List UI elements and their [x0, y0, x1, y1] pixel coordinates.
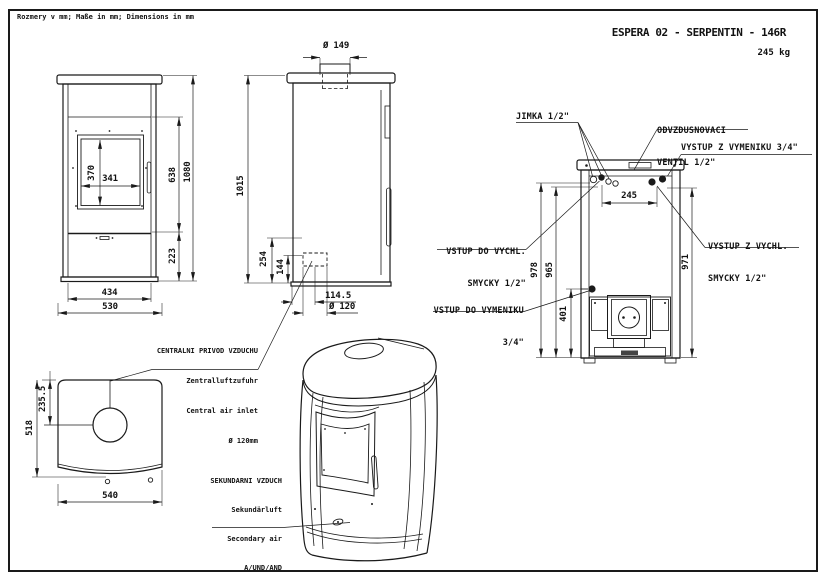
callout-vent-line2: VENTIL 1/2" — [657, 158, 726, 169]
dim-depth-total: 518 — [25, 420, 35, 436]
dim-total-width: 530 — [102, 302, 118, 312]
callout-air: SEKUNDARNI VZDUCH Sekundärluft Secondary… — [192, 458, 282, 583]
dim-inlet-top-height: 254 — [259, 251, 269, 267]
dim-height-outer: 978 — [530, 262, 540, 278]
dim-inlet-height-rear: 401 — [559, 306, 569, 322]
side-view-linework — [287, 64, 395, 286]
callout-central-air-line3: Central air inlet — [140, 406, 258, 416]
drawing-title: ESPERA 02 - SERPENTIN - 146R — [560, 26, 786, 39]
side-view-dimension-lines — [244, 58, 367, 317]
dim-flue-diameter: Ø 149 — [323, 41, 349, 51]
callout-outlet-loop-line1: VYSTUP Z VYCHL. — [708, 242, 788, 253]
drawing-sheet: Rozmery v mm; Maße in mm; Dimensions in … — [0, 0, 828, 583]
callout-outlet-loop-line2: SMYCKY 1/2" — [708, 274, 788, 285]
callout-air-line3: Secondary air — [192, 535, 282, 545]
sheet-border — [9, 10, 817, 571]
callout-air-line2: Sekundärluft — [192, 506, 282, 516]
dim-base-height: 223 — [168, 248, 178, 264]
dim-total-height: 1080 — [183, 162, 193, 183]
drawing-linework — [0, 0, 828, 583]
callout-central-air: CENTRALNI PRIVOD VZDUCHU Zentralluftzufu… — [140, 326, 258, 456]
dim-flue-center-height: 1015 — [236, 176, 246, 197]
weight-value: 245 kg — [660, 48, 790, 58]
callout-inlet-loop-line1: VSTUP DO VYCHL. — [430, 247, 526, 258]
dim-width-total-plan: 540 — [102, 491, 118, 501]
callout-outlet-exchanger: VYSTUP Z VYMENIKU 3/4" — [681, 143, 798, 154]
dim-inlet-diameter: Ø 120 — [329, 302, 355, 312]
dim-height-right: 971 — [681, 254, 691, 270]
callout-inlet-exchanger: VSTUP DO VYMENIKU 3/4" — [428, 285, 524, 359]
dim-height-inner: 965 — [545, 262, 555, 278]
dim-inlet-height: 144 — [276, 259, 286, 275]
callout-central-air-line4: Ø 120mm — [140, 436, 258, 446]
callout-central-air-line1: CENTRALNI PRIVOD VZDUCHU — [140, 346, 258, 356]
callout-outlet-loop: VYSTUP Z VYCHL. SMYCKY 1/2" — [708, 221, 788, 295]
dim-pipe-spacing: 245 — [621, 191, 637, 201]
units-note: Rozmery v mm; Maße in mm; Dimensions in … — [17, 12, 194, 22]
rear-view-dimension-lines — [536, 183, 697, 358]
front-view-dimension-lines — [58, 76, 197, 317]
callout-air-line1: SEKUNDARNI VZDUCH — [192, 477, 282, 487]
dim-mid-height: 638 — [168, 167, 178, 183]
callout-inlet-exchanger-line2: 3/4" — [428, 338, 524, 349]
callout-air-line4: A/UND/AND — [192, 564, 282, 574]
dim-depth-to-center: 235.5 — [38, 386, 48, 412]
perspective-view-linework — [300, 338, 437, 561]
dim-glass-width: 341 — [102, 174, 118, 184]
callout-jimka: JIMKA 1/2" — [516, 112, 569, 123]
dim-glass-height: 370 — [87, 165, 97, 181]
callout-inlet-exchanger-line1: VSTUP DO VYMENIKU — [428, 306, 524, 317]
callout-central-air-line2: Zentralluftzufuhr — [140, 376, 258, 386]
dim-inlet-offset: 114.5 — [325, 291, 351, 301]
dim-inner-width: 434 — [102, 288, 118, 298]
callout-vent-line1: ODVZDUSNOVACI — [657, 126, 726, 137]
